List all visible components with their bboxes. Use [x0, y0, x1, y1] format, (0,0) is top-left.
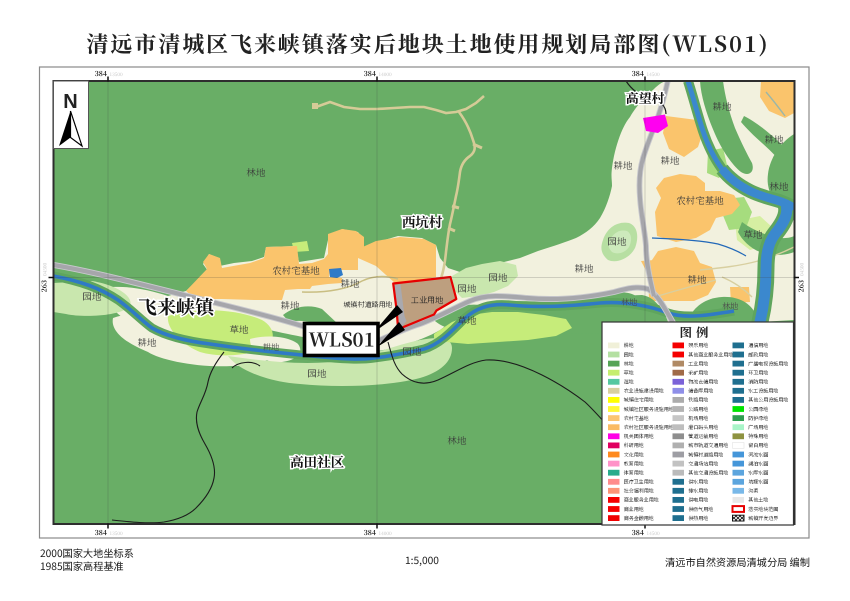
svg-text:飞来峡镇: 飞来峡镇	[138, 293, 214, 320]
svg-text:西坑村: 西坑村	[402, 211, 443, 231]
svg-text:港口码头用地: 港口码头用地	[688, 424, 718, 431]
svg-text:防护绿地: 防护绿地	[748, 415, 768, 422]
svg-text:农业设施建设用地: 农业设施建设用地	[624, 388, 664, 395]
svg-text:耕地: 耕地	[764, 132, 783, 146]
svg-text:13500: 13500	[110, 530, 124, 537]
svg-text:高望村: 高望村	[625, 88, 664, 107]
svg-text:城镇村道路用地: 城镇村道路用地	[344, 300, 394, 310]
svg-text:N: N	[63, 91, 77, 113]
svg-text:草地: 草地	[624, 370, 634, 377]
svg-text:林地: 林地	[621, 297, 637, 308]
svg-text:384: 384	[632, 69, 644, 79]
svg-text:草地: 草地	[457, 313, 476, 327]
svg-text:科研用地: 科研用地	[623, 442, 644, 449]
svg-text:草地: 草地	[229, 322, 248, 336]
svg-text:图例: 图例	[679, 323, 712, 341]
svg-text:公路用地: 公路用地	[688, 406, 708, 413]
svg-text:其他土地: 其他土地	[747, 497, 768, 504]
svg-text:排水用地: 排水用地	[688, 488, 708, 495]
svg-text:园地: 园地	[624, 351, 634, 358]
svg-text:商业用地: 商业用地	[623, 506, 644, 513]
svg-text:湖泊水面: 湖泊水面	[748, 460, 768, 467]
svg-text:林地: 林地	[246, 165, 265, 179]
svg-text:供热用地: 供热用地	[688, 515, 708, 522]
svg-text:城市轨道交通用地: 城市轨道交通用地	[687, 442, 728, 449]
svg-text:供电用地: 供电用地	[688, 497, 708, 504]
svg-text:管道运输用地: 管道运输用地	[687, 433, 718, 440]
svg-text:林地: 林地	[447, 433, 466, 447]
svg-text:工业用地: 工业用地	[410, 295, 443, 306]
svg-text:14000: 14000	[379, 71, 393, 78]
svg-text:384: 384	[95, 69, 107, 79]
svg-text:1985国家高程基准: 1985国家高程基准	[40, 558, 124, 573]
svg-text:留白用地: 留白用地	[748, 442, 768, 449]
svg-text:机场用地: 机场用地	[688, 415, 708, 422]
svg-text:落实地块范围: 落实地块范围	[748, 506, 779, 513]
svg-text:263: 263	[797, 280, 807, 292]
svg-text:13500: 13500	[110, 71, 124, 78]
svg-text:商务金融用地: 商务金融用地	[623, 515, 654, 522]
svg-text:工业用地: 工业用地	[688, 360, 708, 367]
svg-text:城镇村道路用地: 城镇村道路用地	[687, 451, 723, 458]
svg-text:384: 384	[95, 528, 107, 538]
svg-text:储备库用地: 储备库用地	[687, 388, 713, 395]
svg-text:水库水面: 水库水面	[747, 470, 768, 477]
svg-text:城镇开发边界: 城镇开发边界	[747, 515, 778, 522]
svg-text:社会福利用地: 社会福利用地	[624, 488, 654, 495]
svg-text:清远市自然资源局清城分局 编制: 清远市自然资源局清城分局 编制	[665, 554, 810, 569]
svg-text:通信用地: 通信用地	[748, 342, 768, 349]
svg-text:384: 384	[364, 528, 376, 538]
svg-text:环卫用地: 环卫用地	[748, 370, 768, 377]
svg-text:14500: 14500	[647, 71, 661, 78]
svg-text:草地: 草地	[743, 227, 762, 241]
svg-text:医疗卫生用地: 医疗卫生用地	[623, 479, 654, 486]
svg-text:林地: 林地	[769, 179, 788, 193]
svg-text:园地: 园地	[457, 281, 476, 295]
svg-text:其他公用设施用地: 其他公用设施用地	[747, 397, 788, 404]
svg-text:耕地: 耕地	[712, 99, 731, 113]
svg-text:邮政用地: 邮政用地	[748, 351, 768, 358]
svg-text:耕地: 耕地	[574, 261, 593, 275]
svg-text:园地: 园地	[307, 366, 326, 380]
svg-text:1:5,000: 1:5,000	[405, 552, 439, 567]
svg-text:263: 263	[40, 280, 50, 292]
svg-text:体育用地: 体育用地	[623, 470, 644, 477]
svg-text:广场用地: 广场用地	[747, 424, 768, 431]
svg-text:其他商业服务业用地: 其他商业服务业用地	[687, 351, 733, 358]
svg-text:水工设施用地: 水工设施用地	[747, 388, 778, 395]
svg-text:园地: 园地	[607, 234, 626, 248]
svg-text:耕地: 耕地	[137, 335, 156, 349]
svg-text:林地: 林地	[722, 301, 738, 312]
svg-text:坑塘水面: 坑塘水面	[748, 479, 768, 486]
svg-text:沟渠: 沟渠	[748, 488, 758, 495]
svg-text:园地: 园地	[82, 289, 101, 303]
svg-text:物流仓储用地: 物流仓储用地	[688, 379, 718, 386]
svg-text:河流水面: 河流水面	[748, 451, 768, 458]
svg-text:教育用地: 教育用地	[624, 460, 644, 467]
svg-text:耕地: 耕地	[660, 153, 679, 167]
svg-text:娱乐用地: 娱乐用地	[687, 342, 708, 349]
svg-text:园地: 园地	[402, 344, 421, 358]
svg-text:农村宅基地: 农村宅基地	[272, 263, 320, 277]
svg-text:采矿用地: 采矿用地	[687, 370, 708, 377]
svg-text:城镇住宅用地: 城镇住宅用地	[623, 397, 654, 404]
svg-text:04500: 04500	[799, 262, 806, 276]
svg-text:WLS01: WLS01	[308, 326, 375, 353]
svg-text:其他交通设施用地: 其他交通设施用地	[687, 470, 728, 477]
svg-text:耕地: 耕地	[280, 298, 299, 312]
svg-text:机关团体用地: 机关团体用地	[624, 433, 654, 440]
svg-text:园地: 园地	[488, 270, 507, 284]
svg-text:耕地: 耕地	[624, 342, 634, 349]
svg-text:384: 384	[364, 69, 376, 79]
svg-text:14500: 14500	[647, 530, 661, 537]
svg-text:城镇社区服务设施用地: 城镇社区服务设施用地	[623, 406, 674, 413]
svg-text:文化用地: 文化用地	[624, 451, 644, 458]
svg-text:湿地: 湿地	[624, 379, 634, 386]
svg-text:耕地: 耕地	[262, 342, 279, 353]
svg-text:04500: 04500	[42, 262, 49, 276]
svg-text:特殊用地: 特殊用地	[748, 433, 768, 440]
svg-text:14000: 14000	[379, 530, 393, 537]
svg-text:农村宅基地: 农村宅基地	[624, 415, 649, 422]
svg-text:消防用地: 消防用地	[748, 379, 768, 386]
svg-text:供燃气用地: 供燃气用地	[688, 506, 713, 513]
svg-text:耕地: 耕地	[340, 276, 359, 290]
svg-text:384: 384	[632, 528, 644, 538]
svg-text:商业服务业用地: 商业服务业用地	[623, 497, 659, 504]
svg-text:广播电视设施用地: 广播电视设施用地	[747, 360, 788, 367]
svg-text:耕地: 耕地	[687, 272, 706, 286]
svg-text:交通场站用地: 交通场站用地	[688, 460, 718, 467]
svg-text:供水用地: 供水用地	[688, 479, 708, 486]
svg-text:农村宅基地: 农村宅基地	[676, 193, 724, 207]
svg-text:铁路用地: 铁路用地	[688, 397, 708, 404]
svg-text:高田社区: 高田社区	[290, 451, 344, 471]
svg-text:耕地: 耕地	[613, 158, 632, 172]
svg-text:林地: 林地	[624, 360, 634, 367]
svg-text:公园绿地: 公园绿地	[748, 406, 768, 413]
svg-text:农村社区服务设施用地: 农村社区服务设施用地	[624, 424, 674, 431]
svg-text:清远市清城区飞来峡镇落实后地块土地使用规划局部图(WLS01: 清远市清城区飞来峡镇落实后地块土地使用规划局部图(WLS01)	[86, 28, 769, 59]
